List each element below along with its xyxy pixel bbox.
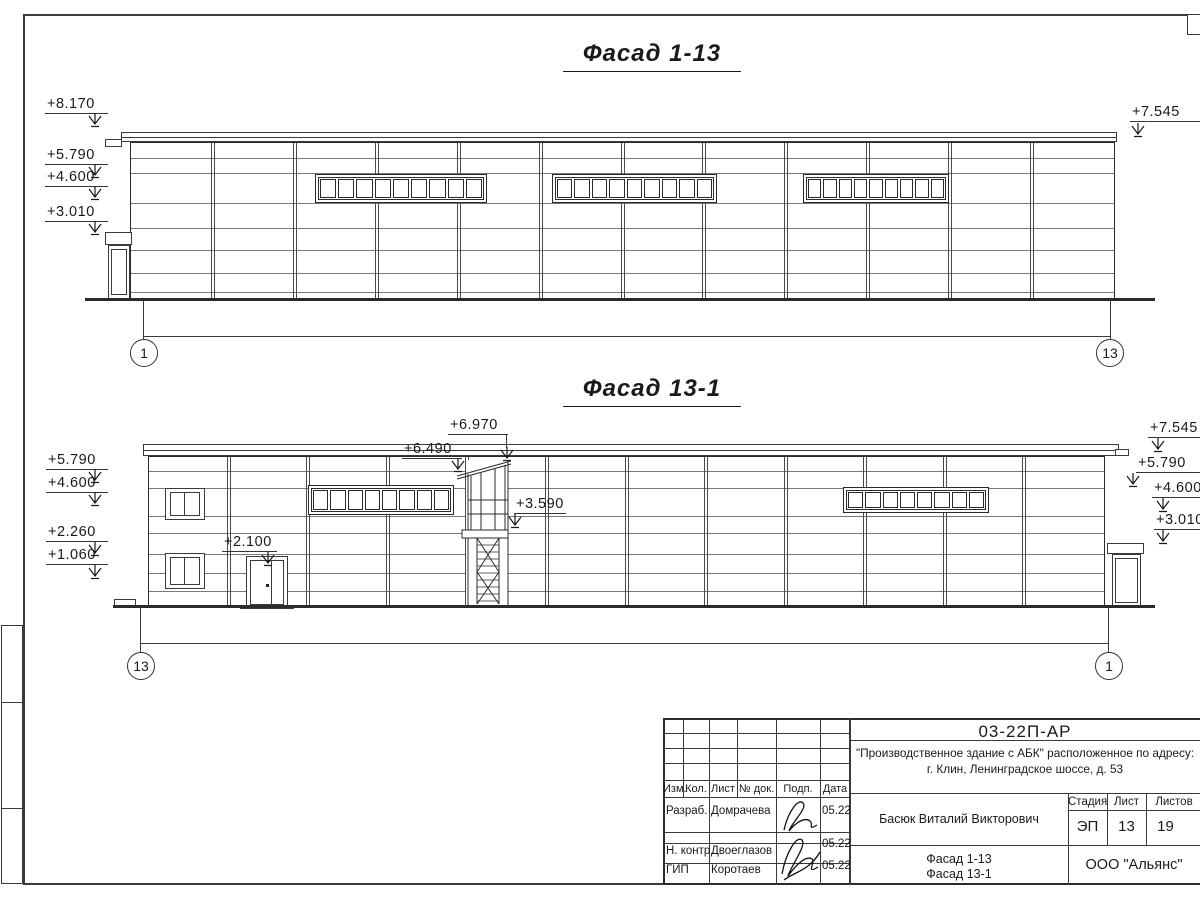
- sheet-number: 13: [1107, 818, 1146, 835]
- window-pane: [434, 490, 449, 510]
- column-mullion-line: [1022, 457, 1026, 606]
- signer-date: 05.22: [822, 838, 851, 850]
- window-pane: [915, 179, 928, 198]
- window-pane: [320, 179, 336, 198]
- facade2-window-band: [843, 487, 989, 513]
- window-pane: [609, 179, 624, 198]
- door-knob: [266, 584, 269, 587]
- elevation-mark-label: +2.100: [222, 534, 277, 552]
- tb-col-list: Лист: [709, 783, 737, 795]
- window-band-frame: [806, 177, 946, 200]
- sheet-frame-top: [23, 14, 1200, 16]
- column-mullion-line: [293, 143, 297, 299]
- sheets-total: 19: [1146, 818, 1185, 835]
- facade2-annex-inner: [1115, 558, 1138, 603]
- elevation-arrow-icon: [88, 469, 102, 486]
- column-mullion-line: [306, 457, 310, 606]
- column-mullion-line: [948, 143, 952, 299]
- facade1-wall: [130, 142, 1115, 300]
- column-mullion-line: [539, 143, 543, 299]
- elevation-mark-label: +6.970: [448, 417, 508, 435]
- facade2-window-band: [308, 485, 454, 515]
- signer-role: Н. контр.: [666, 845, 713, 857]
- column-mullion-line: [863, 457, 867, 606]
- margin-stamp-box: [1, 625, 23, 703]
- window-pane: [854, 179, 867, 198]
- signer-name: Коротаев: [711, 864, 761, 876]
- column-mullion-line: [545, 457, 549, 606]
- facade1-parapet-line: [122, 137, 1116, 138]
- column-mullion-line: [1030, 143, 1034, 299]
- elevation-mark-label: +2.260: [46, 524, 108, 542]
- grid-extension-line: [140, 608, 141, 652]
- small-window-frame: [170, 492, 200, 516]
- elevation-mark-label: +7.545: [1130, 104, 1200, 122]
- column-mullion-line: [211, 143, 215, 299]
- elevation-mark-label: +3.590: [514, 496, 566, 514]
- project-name-line2: г. Клин, Ленинградское шоссе, д. 53: [852, 762, 1198, 776]
- signer-role: ГИП: [666, 864, 689, 876]
- facade1-ground-line: [85, 298, 1155, 301]
- window-pane: [448, 179, 464, 198]
- column-mullion-line: [457, 143, 461, 299]
- window-pane: [900, 492, 915, 508]
- window-pane: [627, 179, 642, 198]
- elevation-arrow-icon: [508, 514, 522, 531]
- content-title-line1: Фасад 1-13: [852, 852, 1066, 866]
- facade1-window-band: [552, 174, 717, 203]
- window-pane: [574, 179, 589, 198]
- window-pane: [365, 490, 380, 510]
- window-pane: [934, 492, 949, 508]
- window-pane: [808, 179, 821, 198]
- window-pane: [900, 179, 913, 198]
- facade1-window-band: [315, 174, 487, 203]
- elevation-arrow-icon: [1151, 438, 1165, 455]
- window-pane: [466, 179, 482, 198]
- sheets-label: Листов: [1146, 796, 1200, 808]
- column-mullion-line: [621, 143, 625, 299]
- elevation-arrow-icon: [500, 447, 514, 464]
- window-pane: [338, 179, 354, 198]
- window-pane: [952, 492, 967, 508]
- signer-role: Разраб.: [666, 805, 707, 817]
- elevation-arrow-icon: [1156, 498, 1170, 515]
- grid-bubble-1: 1: [130, 339, 158, 367]
- elevation-mark-label: +5.790: [45, 147, 108, 165]
- window-pane: [399, 490, 414, 510]
- window-band-frame: [311, 488, 451, 512]
- window-pane: [330, 490, 345, 510]
- tb-col-data: Дата: [820, 783, 850, 795]
- facade2-ground-line: [113, 605, 1155, 608]
- tb-col-doc: № док.: [737, 783, 776, 795]
- window-pane: [348, 490, 363, 510]
- window-pane: [375, 179, 391, 198]
- facade2-wall: [148, 456, 1105, 607]
- elevation-mark-label: +4.600: [1152, 480, 1200, 498]
- window-pane: [839, 179, 852, 198]
- stage-value: ЭП: [1068, 818, 1107, 835]
- facade1-roof-bracket: [105, 139, 122, 147]
- window-pane: [356, 179, 372, 198]
- window-band-frame: [555, 177, 714, 200]
- elevation-arrow-icon: [88, 113, 102, 130]
- window-pane: [917, 492, 932, 508]
- elevation-mark-label: +8.170: [45, 96, 108, 114]
- stair-tower: [452, 452, 514, 610]
- elevation-arrow-icon: [88, 565, 102, 582]
- title-block-line: [663, 797, 850, 798]
- leader-line: [506, 434, 507, 448]
- facade2-title: Фасад 13-1: [563, 375, 741, 407]
- column-mullion-line: [943, 457, 947, 606]
- signature-icon: [776, 830, 822, 882]
- title-block-line: [850, 845, 1200, 846]
- elevation-arrow-icon: [261, 552, 275, 569]
- elevation-arrow-icon: [451, 458, 465, 475]
- tb-col-kol: Кол.: [683, 783, 709, 795]
- margin-stamp-box: [1, 808, 23, 884]
- grid-bubble-13: 13: [127, 652, 155, 680]
- window-pane: [417, 490, 432, 510]
- title-block-line: [1068, 810, 1200, 811]
- title-block-line: [709, 718, 710, 885]
- elevation-arrow-icon: [88, 186, 102, 203]
- window-pane: [931, 179, 944, 198]
- tower-ledge: [462, 530, 508, 538]
- elevation-arrow-icon: [88, 542, 102, 559]
- grid-extension-line: [1110, 301, 1111, 339]
- grid-extension-line: [1108, 608, 1109, 652]
- title-block-line: [850, 740, 1200, 741]
- window-pane: [697, 179, 712, 198]
- doc-number: 03-22П-АР: [852, 722, 1198, 742]
- sheet-frame-left: [23, 14, 25, 885]
- column-mullion-line: [702, 143, 706, 299]
- title-block-line: [663, 780, 850, 781]
- elevation-arrow-icon: [1126, 473, 1140, 490]
- facade1-window-band: [803, 174, 949, 203]
- column-mullion-line: [704, 457, 708, 606]
- title-block-line: [663, 763, 850, 764]
- tb-col-podp: Подп.: [776, 783, 820, 795]
- window-pane: [313, 490, 328, 510]
- elevation-mark-label: +7.545: [1148, 420, 1200, 438]
- facade2-parapet-line: [144, 450, 1118, 451]
- window-pane: [848, 492, 863, 508]
- window-pane: [883, 492, 898, 508]
- window-pane: [885, 179, 898, 198]
- elevation-mark-label: +3.010: [45, 204, 108, 222]
- title-block-line: [663, 748, 850, 749]
- frame-corner-box: [1187, 14, 1200, 35]
- facade2-roof-bracket: [1115, 449, 1129, 456]
- content-title-line2: Фасад 13-1: [852, 867, 1066, 881]
- window-pane: [865, 492, 880, 508]
- facade1-annex-inner: [111, 249, 127, 295]
- column-mullion-line: [386, 457, 390, 606]
- drawing-sheet: Фасад 1-13 1 13 +8.170 +5.790 +4.600 +3.…: [0, 0, 1200, 900]
- sheet-label: Лист: [1107, 796, 1146, 808]
- grid-dimension-line: [140, 643, 1108, 644]
- author-name: Басюк Виталий Викторович: [852, 812, 1066, 826]
- facade1-annex-cap: [105, 232, 132, 245]
- window-band-frame: [318, 177, 484, 200]
- column-mullion-line: [866, 143, 870, 299]
- title-block-line: [850, 793, 1200, 794]
- elevation-arrow-icon: [1156, 530, 1170, 547]
- column-mullion-line: [784, 143, 788, 299]
- tb-col-izm: Изм.: [663, 783, 683, 795]
- stage-label: Стадия: [1068, 796, 1107, 808]
- signer-name: Двоеглазов: [711, 845, 772, 857]
- window-pane: [382, 490, 397, 510]
- window-pane: [592, 179, 607, 198]
- window-pane: [869, 179, 882, 198]
- facade2-annex-cap: [1107, 543, 1144, 554]
- window-pane: [393, 179, 409, 198]
- column-mullion-line: [625, 457, 629, 606]
- window-pane: [429, 179, 445, 198]
- window-pane: [644, 179, 659, 198]
- company-name: ООО "Альянс": [1068, 857, 1200, 873]
- column-mullion-line: [227, 457, 231, 606]
- elevation-arrow-icon: [88, 221, 102, 238]
- elevation-arrow-icon: [88, 164, 102, 181]
- window-pane: [823, 179, 836, 198]
- window-pane: [557, 179, 572, 198]
- grid-dimension-line: [143, 336, 1110, 337]
- grid-bubble-1: 1: [1095, 652, 1123, 680]
- window-band-frame: [846, 490, 986, 510]
- title-block-line: [663, 733, 850, 734]
- small-window-mullion: [184, 493, 185, 515]
- column-mullion-line: [375, 143, 379, 299]
- window-pane: [969, 492, 984, 508]
- window-pane: [679, 179, 694, 198]
- elevation-mark-label: +5.790: [1136, 455, 1200, 473]
- elevation-mark-label: +6.490: [402, 441, 462, 459]
- grid-extension-line: [143, 301, 144, 339]
- elevation-arrow-icon: [88, 492, 102, 509]
- elevation-arrow-icon: [1131, 123, 1145, 140]
- signer-name: Домрачева: [711, 805, 771, 817]
- small-window-frame: [170, 557, 200, 585]
- project-name-line1: "Производственное здание с АБК" располож…: [852, 746, 1198, 760]
- signer-date: 05.22: [822, 805, 851, 817]
- grid-bubble-13: 13: [1096, 339, 1124, 367]
- facade1-title: Фасад 1-13: [563, 40, 741, 72]
- elevation-mark-label: +5.790: [46, 452, 108, 470]
- small-window-mullion: [184, 558, 185, 584]
- signer-date: 05.22: [822, 860, 851, 872]
- margin-stamp-box: [1, 702, 23, 809]
- column-mullion-line: [784, 457, 788, 606]
- window-pane: [411, 179, 427, 198]
- window-pane: [662, 179, 677, 198]
